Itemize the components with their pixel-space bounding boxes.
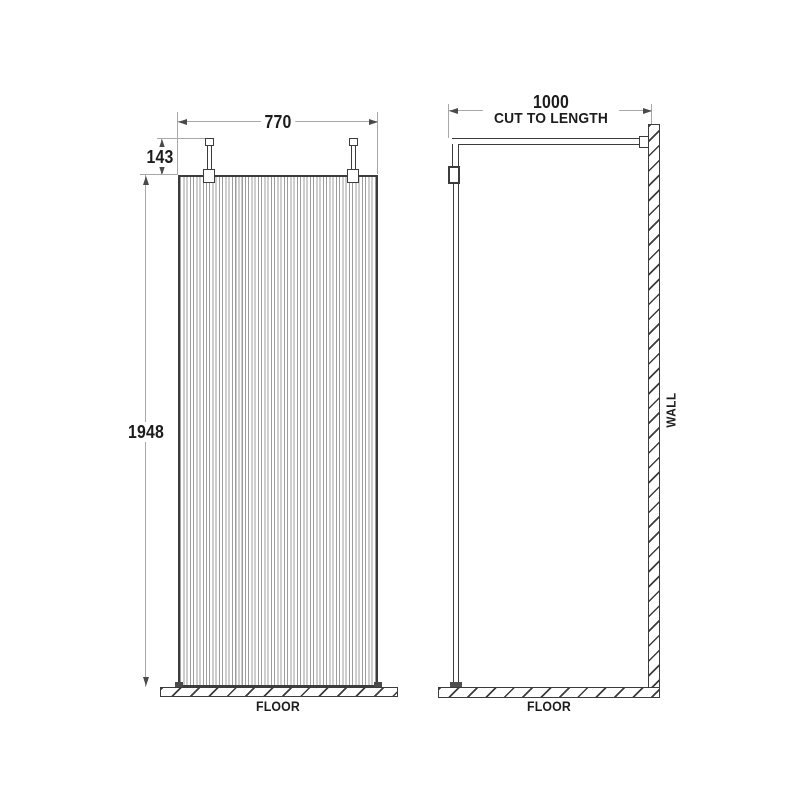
dim-1948-arrow-top	[143, 176, 149, 185]
dim-770-arrow-right	[369, 119, 378, 125]
glass-clamp-profile	[448, 166, 460, 184]
dim-1000-arrow-left	[449, 108, 458, 114]
dim-1000-ext-right	[651, 104, 652, 124]
dim-1000-arrow-right	[643, 108, 652, 114]
dim-1948-label: 1948	[125, 422, 168, 442]
bracket-left-stem	[207, 146, 212, 170]
bracket-right-clamp	[347, 169, 359, 183]
fluted-glass-panel	[178, 175, 378, 687]
wall	[648, 124, 660, 698]
floor-side	[438, 687, 660, 698]
glass-panel-profile	[453, 167, 459, 687]
technical-drawing-canvas: FLOOR 770 143 1948 WALL	[0, 0, 800, 800]
floor-front	[160, 687, 398, 697]
dim-770-arrow-left	[178, 119, 187, 125]
dim-143-label: 143	[145, 147, 175, 167]
bracket-right-cap	[349, 138, 358, 146]
arm-drop-post	[452, 144, 459, 168]
support-arm	[452, 138, 648, 145]
dim-770-label: 770	[261, 112, 295, 132]
floor-side-label: FLOOR	[524, 699, 573, 713]
cut-to-length-label: CUT TO LENGTH	[494, 111, 608, 127]
bracket-right-stem	[351, 146, 356, 170]
floor-front-label: FLOOR	[253, 699, 302, 713]
wall-label: WALL	[665, 392, 678, 427]
bracket-left-cap	[205, 138, 214, 146]
bracket-left-clamp	[203, 169, 215, 183]
dim-1000-label: 1000	[496, 93, 605, 111]
dim-1948-arrow-bottom	[143, 677, 149, 686]
dim-1000-label-group: 1000 CUT TO LENGTH	[483, 93, 619, 127]
